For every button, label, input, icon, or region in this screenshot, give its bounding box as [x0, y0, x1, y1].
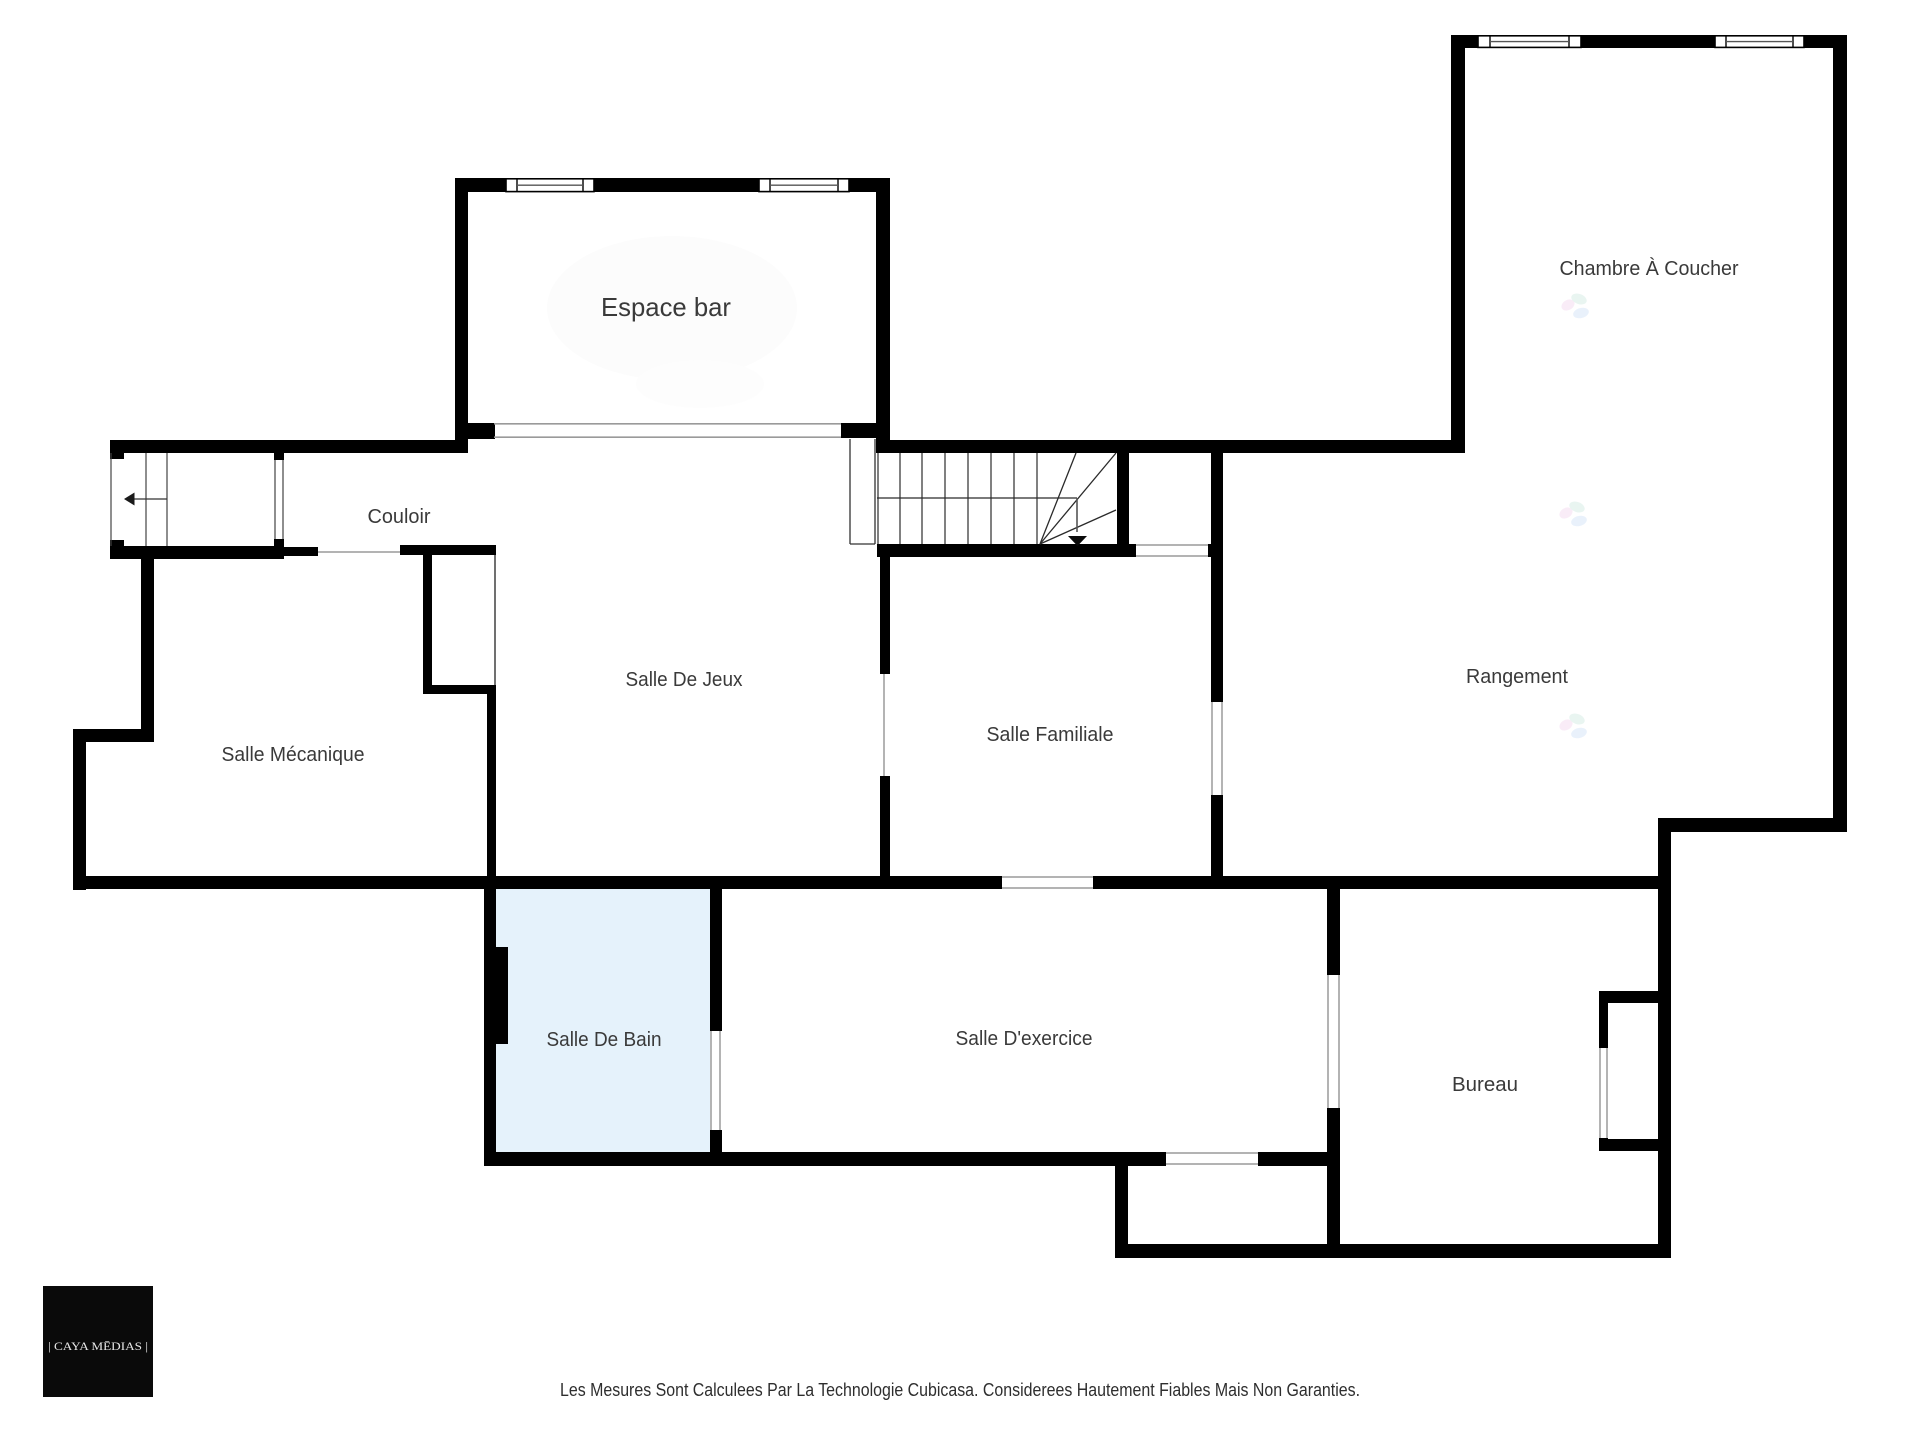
svg-text:Salle D'exercice: Salle D'exercice: [956, 1028, 1093, 1050]
svg-text:Salle Familiale: Salle Familiale: [987, 724, 1114, 746]
svg-text:Salle Mécanique: Salle Mécanique: [222, 744, 365, 766]
svg-text:Espace bar: Espace bar: [601, 292, 731, 322]
svg-text:Chambre À Coucher: Chambre À Coucher: [1560, 257, 1739, 280]
svg-text:| CAYA MĒDIAS |: | CAYA MĒDIAS |: [48, 1340, 148, 1353]
svg-text:Les Mesures Sont Calculees Par: Les Mesures Sont Calculees Par La Techno…: [560, 1380, 1360, 1400]
svg-text:Bureau: Bureau: [1452, 1073, 1518, 1096]
svg-text:Salle De Jeux: Salle De Jeux: [626, 669, 743, 691]
svg-text:Couloir: Couloir: [368, 505, 431, 528]
svg-text:Salle De Bain: Salle De Bain: [547, 1029, 662, 1051]
svg-text:Rangement: Rangement: [1466, 666, 1568, 688]
